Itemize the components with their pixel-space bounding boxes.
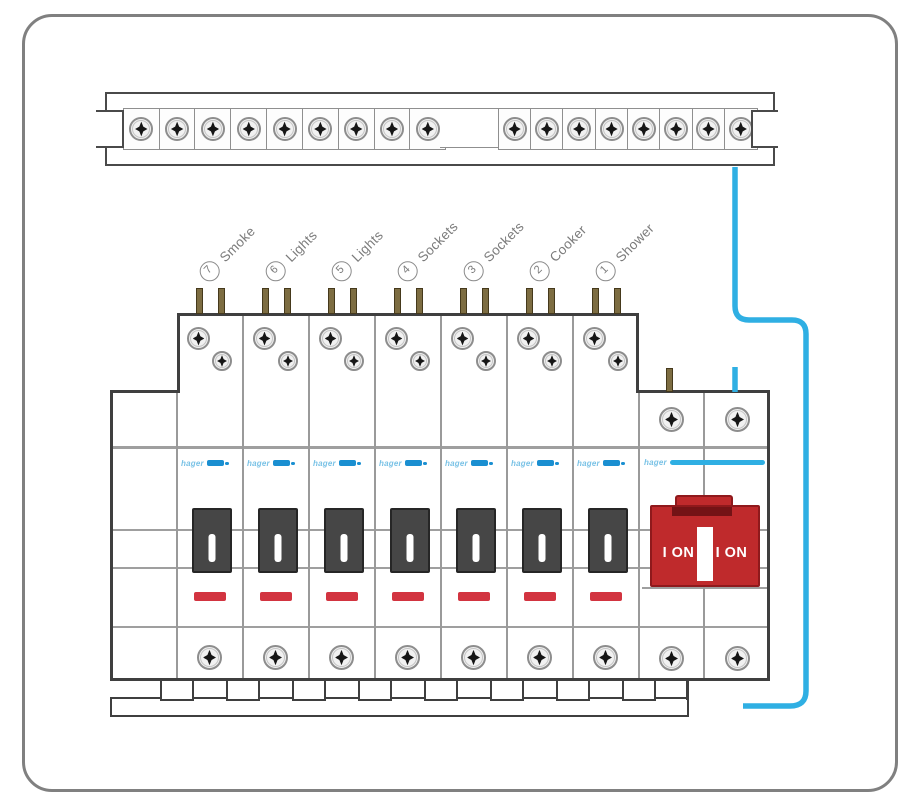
toggle-slot [473,534,480,562]
terminal-cell [374,108,411,150]
breaker-screw-icon [476,351,496,371]
mounting-foot [358,681,392,701]
strip-right-notch [751,110,778,148]
terminal-screw-icon [273,117,297,141]
terminal-cell [194,108,231,150]
main-switch-module: hager I ON I ON [639,367,770,681]
mounting-foot [490,681,524,701]
terminal-screw-icon [201,117,225,141]
terminal-screw-icon [237,117,261,141]
breaker-bottom-screw-icon [329,645,354,670]
brand-mark-icon [273,460,290,466]
breaker-bottom-screw-icon [395,645,420,670]
toggle-slot [275,534,282,562]
terminal-cell [266,108,303,150]
breaker-pin [482,288,489,314]
breaker-toggle [192,508,232,573]
brand-logo: hager [379,456,437,470]
brand-logo: hager [181,456,239,470]
terminal-screw-icon [165,117,189,141]
brand-stripe [670,460,765,465]
brand-mark-icon [603,460,620,466]
terminal-cell [627,108,661,150]
terminal-screw-icon [380,117,404,141]
breaker-screw-icon [451,327,474,350]
breaker-toggle [588,508,628,573]
breaker-module: hager [573,288,639,681]
breaker-screw-icon [253,327,276,350]
blank-module-face [110,390,177,681]
breaker-toggle [522,508,562,573]
breaker-rating-bar [260,592,292,601]
breaker-bottom-screw-icon [593,645,618,670]
breaker-module: hager [309,288,375,681]
brand-logo: hager [313,456,371,470]
breaker-pin [416,288,423,314]
main-switch-pin [666,368,673,392]
rail-step [686,681,689,700]
breaker-pin [196,288,203,314]
breaker-pin [218,288,225,314]
breaker-screw-icon [517,327,540,350]
terminal-screw-icon [696,117,720,141]
panel-edge-left [110,390,113,681]
main-switch-dark-band [672,507,732,516]
breaker-pin [328,288,335,314]
terminal-screw-icon [632,117,656,141]
toggle-slot [341,534,348,562]
breaker-bottom-screw-icon [527,645,552,670]
terminal-screw-icon [129,117,153,141]
breaker-screw-icon [410,351,430,371]
toggle-slot [407,534,414,562]
breaker-bottom-screw-icon [263,645,288,670]
breaker-bottom-screw-icon [197,645,222,670]
breaker-screw-icon [319,327,342,350]
breaker-pin [394,288,401,314]
breaker-screw-icon [278,351,298,371]
toggle-slot [605,534,612,562]
brand-mark-icon [207,460,224,466]
breaker-pin [592,288,599,314]
breaker-pin [548,288,555,314]
breaker-toggle [324,508,364,573]
breaker-pin [350,288,357,314]
terminal-screw-icon [664,117,688,141]
main-switch-bottom-screw-icon [725,646,750,671]
brand-mark-icon [405,460,422,466]
breaker-module: hager [375,288,441,681]
terminal-cell [302,108,339,150]
brand-logo: hager [445,456,503,470]
brand-mark-icon [339,460,356,466]
breaker-pin [262,288,269,314]
terminal-strip-left-group [124,108,446,150]
breaker-screw-icon [344,351,364,371]
breaker-toggle [390,508,430,573]
panel-edge-top-left [110,390,180,393]
consumer-unit-diagram: 7 Smoke 6 Lights 5 Lights 4 Sockets 3 So… [0,0,918,810]
main-switch-screw-icon [659,407,684,432]
terminal-cell [692,108,726,150]
mounting-foot [556,681,590,701]
breaker-module: hager [177,288,243,681]
brand-logo: hager [511,456,569,470]
terminal-strip-gap [440,108,500,148]
terminal-cell [562,108,596,150]
brand-mark-icon [471,460,488,466]
breaker-screw-icon [385,327,408,350]
mounting-foot [292,681,326,701]
terminal-cell [338,108,375,150]
brand-logo: hager [577,456,635,470]
terminal-cell [498,108,532,150]
breaker-screw-icon [542,351,562,371]
strip-left-notch [96,110,124,148]
terminal-screw-icon [503,117,527,141]
mounting-foot [622,681,656,701]
brand-logo: hager [247,456,305,470]
mounting-foot [424,681,458,701]
terminal-cell [659,108,693,150]
brand-logo: hager [644,455,765,469]
terminal-screw-icon [308,117,332,141]
terminal-screw-icon [567,117,591,141]
breaker-bottom-screw-icon [461,645,486,670]
toggle-slot [209,534,216,562]
mounting-foot [226,681,260,701]
breaker-module: hager [507,288,573,681]
terminal-cell [595,108,629,150]
breaker-screw-icon [187,327,210,350]
terminal-screw-icon [416,117,440,141]
breaker-rating-bar [326,592,358,601]
terminal-screw-icon [600,117,624,141]
breaker-screw-icon [608,351,628,371]
terminal-cell [230,108,267,150]
terminal-screw-icon [729,117,753,141]
breaker-screw-icon [212,351,232,371]
din-rail-bar [110,697,689,717]
terminal-screw-icon [535,117,559,141]
main-switch-screw-icon [725,407,750,432]
breaker-pin [284,288,291,314]
breaker-pin [526,288,533,314]
toggle-slot [539,534,546,562]
main-switch-rocker: I ON I ON [650,505,760,587]
terminal-strip-right-group [499,108,758,150]
breaker-rating-bar [194,592,226,601]
main-switch-slot [697,527,713,581]
terminal-cell [530,108,564,150]
breaker-rating-bar [458,592,490,601]
terminal-cell [123,108,160,150]
breaker-rating-bar [590,592,622,601]
breaker-module: hager [441,288,507,681]
breaker-module: hager [243,288,309,681]
breaker-toggle [456,508,496,573]
terminal-cell [159,108,196,150]
main-switch-bottom-screw-icon [659,646,684,671]
breaker-rating-bar [524,592,556,601]
mounting-foot [160,681,194,701]
breaker-pin [460,288,467,314]
breaker-toggle [258,508,298,573]
brand-mark-icon [537,460,554,466]
terminal-screw-icon [344,117,368,141]
breaker-screw-icon [583,327,606,350]
breaker-rating-bar [392,592,424,601]
breaker-pin [614,288,621,314]
